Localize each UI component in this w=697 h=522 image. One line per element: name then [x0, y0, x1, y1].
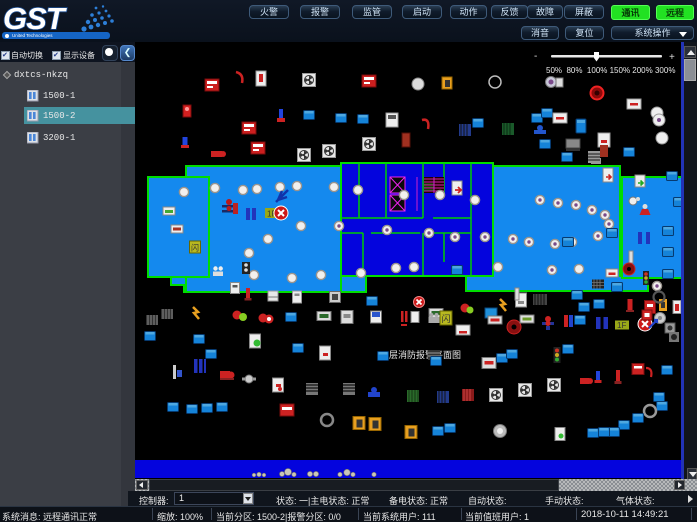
svg-text:50% 80% 100% 150% 200% 300%: 50% 80% 100% 150% 200% 300% — [546, 66, 675, 75]
svg-text:+: + — [669, 52, 675, 63]
svg-text:GST: GST — [3, 1, 68, 36]
svg-text:1F: 1F — [617, 321, 626, 330]
svg-text:闪: 闪 — [191, 244, 199, 253]
svg-text:闪: 闪 — [442, 314, 451, 324]
svg-text:-: - — [534, 51, 537, 62]
svg-text:层消防报警平面图: 层消防报警平面图 — [389, 349, 461, 360]
